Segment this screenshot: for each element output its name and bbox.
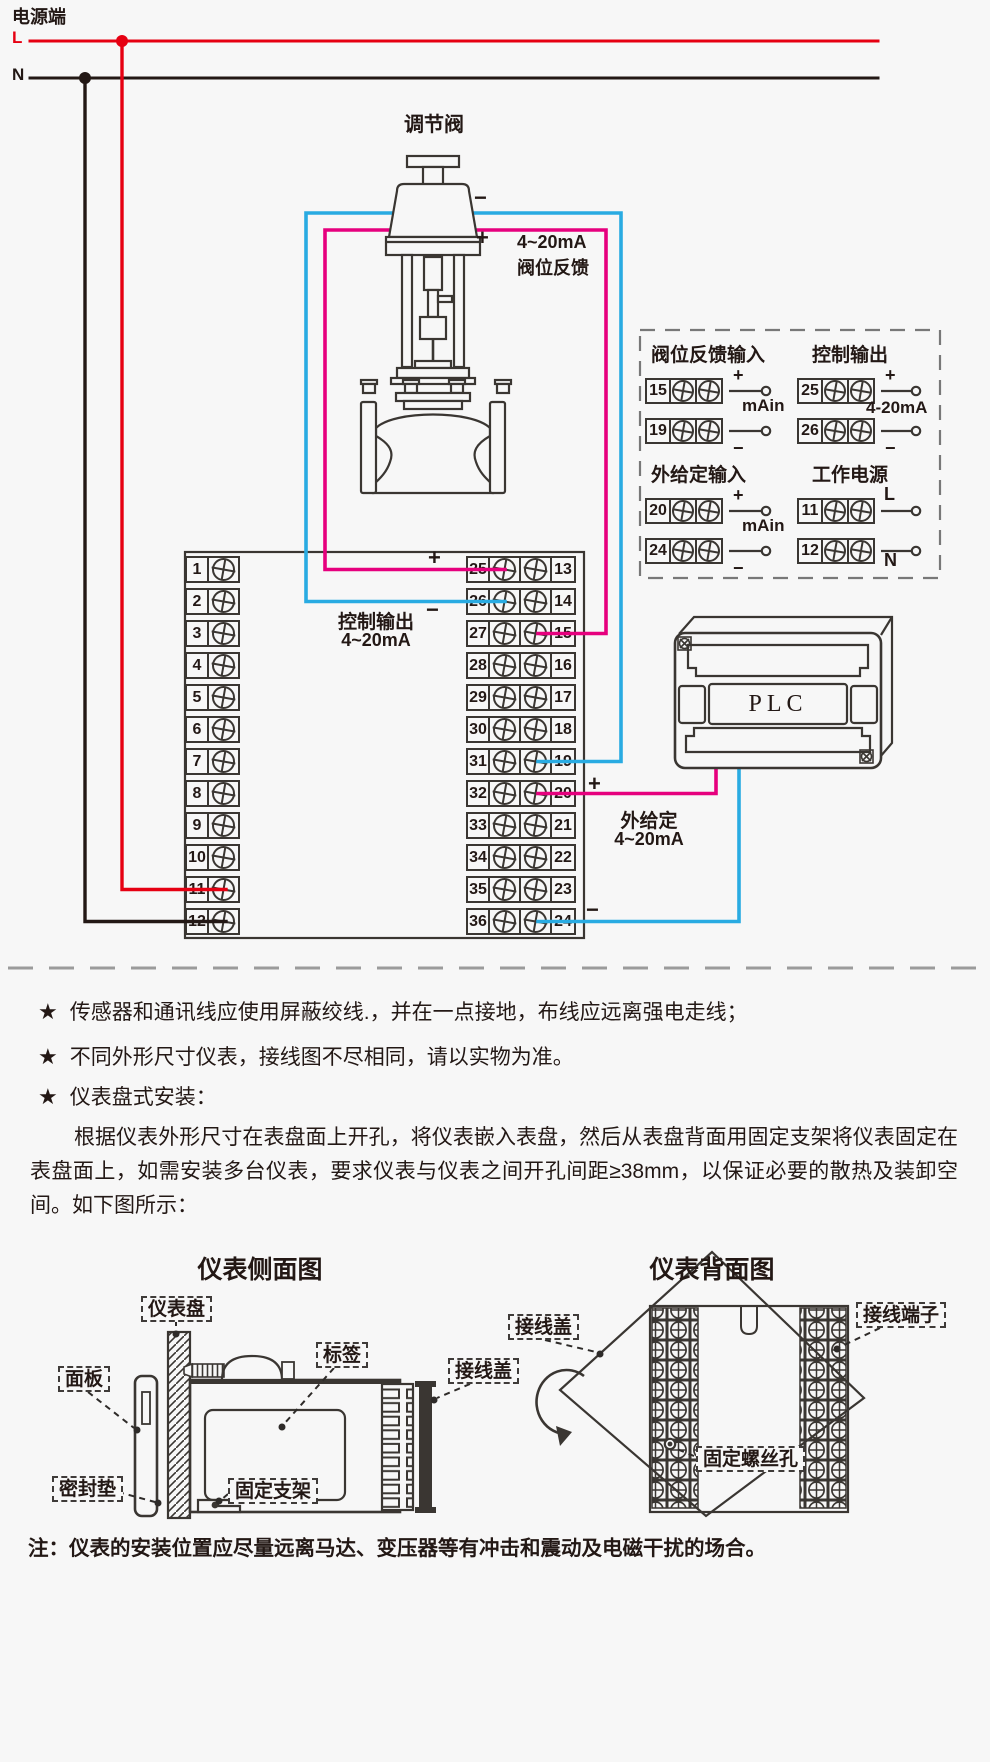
terminal-screw-icon <box>488 876 521 903</box>
terminal-row: 5 <box>185 684 240 711</box>
terminal-screw-icon <box>207 716 240 743</box>
terminal-screw-icon <box>207 588 240 615</box>
terminal-number: 7 <box>185 748 209 775</box>
terminal-screw-icon <box>519 780 552 807</box>
terminal-row: 2715 <box>466 620 576 647</box>
terminal-screw-icon <box>847 498 875 524</box>
terminal-row: 24 <box>645 538 723 564</box>
terminal-screw-icon <box>488 844 521 871</box>
terminal-row: 8 <box>185 780 240 807</box>
terminal-screw-icon <box>695 538 723 564</box>
terminal-screw-icon <box>519 556 552 583</box>
terminal-screw-icon <box>519 876 552 903</box>
terminal-screw-icon <box>488 556 521 583</box>
terminal-screw-icon <box>695 418 723 444</box>
terminal-screw-icon <box>488 716 521 743</box>
terminal-row: 3523 <box>466 876 576 903</box>
terminal-number: 6 <box>185 716 209 743</box>
terminal-screw-icon <box>519 652 552 679</box>
terminal-number: 3 <box>185 620 209 647</box>
terminal-row: 6 <box>185 716 240 743</box>
terminal-screw-icon <box>847 418 875 444</box>
terminal-screw-icon <box>695 498 723 524</box>
terminal-screw-icon <box>519 844 552 871</box>
terminal-number: 19 <box>645 418 671 444</box>
terminal-number: 1 <box>185 556 209 583</box>
terminal-number: 11 <box>797 498 823 524</box>
terminal-row: 10 <box>185 844 240 871</box>
terminal-number: 20 <box>550 780 576 807</box>
terminal-number: 9 <box>185 812 209 839</box>
terminal-number: 27 <box>466 620 490 647</box>
terminal-number: 25 <box>797 378 823 404</box>
terminal-row: 3018 <box>466 716 576 743</box>
terminal-screw-icon <box>669 418 697 444</box>
terminal-row: 3321 <box>466 812 576 839</box>
terminal-number: 15 <box>550 620 576 647</box>
terminal-number: 8 <box>185 780 209 807</box>
terminal-number: 21 <box>550 812 576 839</box>
terminal-row: 3422 <box>466 844 576 871</box>
terminal-screw-icon <box>669 498 697 524</box>
terminal-screw-icon <box>207 780 240 807</box>
terminal-number: 14 <box>550 588 576 615</box>
terminal-number: 18 <box>550 716 576 743</box>
terminal-screw-icon <box>821 378 849 404</box>
terminal-row: 26 <box>797 418 875 444</box>
terminal-row: 1 <box>185 556 240 583</box>
wiring-manual-page: { "power": { "title": "电源端", "live": "L"… <box>0 0 990 1757</box>
terminal-number: 35 <box>466 876 490 903</box>
terminal-number: 34 <box>466 844 490 871</box>
terminal-screw-icon <box>847 538 875 564</box>
terminal-screw-icon <box>207 620 240 647</box>
terminal-number: 20 <box>645 498 671 524</box>
terminal-number: 12 <box>797 538 823 564</box>
terminal-row: 3119 <box>466 748 576 775</box>
terminal-row: 20 <box>645 498 723 524</box>
terminal-screw-icon <box>488 780 521 807</box>
terminal-number: 10 <box>185 844 209 871</box>
terminal-screw-icon <box>519 620 552 647</box>
terminal-number: 19 <box>550 748 576 775</box>
terminal-row: 12 <box>797 538 875 564</box>
terminal-strips-layer: 1234567891011122513261427152816291730183… <box>0 0 990 1757</box>
terminal-row: 7 <box>185 748 240 775</box>
terminal-screw-icon <box>669 378 697 404</box>
terminal-row: 2513 <box>466 556 576 583</box>
terminal-screw-icon <box>519 588 552 615</box>
terminal-row: 4 <box>185 652 240 679</box>
terminal-row: 11 <box>185 876 240 903</box>
terminal-number: 11 <box>185 876 209 903</box>
terminal-screw-icon <box>207 652 240 679</box>
terminal-screw-icon <box>488 652 521 679</box>
terminal-row: 2614 <box>466 588 576 615</box>
terminal-row: 15 <box>645 378 723 404</box>
terminal-row: 25 <box>797 378 875 404</box>
terminal-row: 2917 <box>466 684 576 711</box>
terminal-screw-icon <box>519 716 552 743</box>
terminal-screw-icon <box>207 556 240 583</box>
terminal-number: 23 <box>550 876 576 903</box>
terminal-screw-icon <box>488 588 521 615</box>
terminal-screw-icon <box>669 538 697 564</box>
terminal-number: 36 <box>466 908 490 935</box>
terminal-screw-icon <box>207 748 240 775</box>
terminal-number: 33 <box>466 812 490 839</box>
terminal-number: 4 <box>185 652 209 679</box>
terminal-screw-icon <box>519 812 552 839</box>
terminal-screw-icon <box>821 498 849 524</box>
terminal-number: 24 <box>645 538 671 564</box>
terminal-row: 2 <box>185 588 240 615</box>
terminal-screw-icon <box>488 748 521 775</box>
terminal-number: 32 <box>466 780 490 807</box>
terminal-number: 16 <box>550 652 576 679</box>
terminal-number: 12 <box>185 908 209 935</box>
terminal-row: 3220 <box>466 780 576 807</box>
terminal-number: 26 <box>466 588 490 615</box>
terminal-screw-icon <box>519 748 552 775</box>
terminal-screw-icon <box>207 844 240 871</box>
terminal-number: 25 <box>466 556 490 583</box>
terminal-number: 13 <box>550 556 576 583</box>
terminal-number: 29 <box>466 684 490 711</box>
terminal-row: 2816 <box>466 652 576 679</box>
terminal-screw-icon <box>488 908 521 935</box>
terminal-number: 31 <box>466 748 490 775</box>
terminal-row: 11 <box>797 498 875 524</box>
terminal-screw-icon <box>519 684 552 711</box>
terminal-screw-icon <box>519 908 552 935</box>
terminal-number: 24 <box>550 908 576 935</box>
terminal-screw-icon <box>695 378 723 404</box>
terminal-number: 2 <box>185 588 209 615</box>
terminal-number: 17 <box>550 684 576 711</box>
terminal-row: 12 <box>185 908 240 935</box>
terminal-number: 15 <box>645 378 671 404</box>
terminal-number: 5 <box>185 684 209 711</box>
terminal-row: 19 <box>645 418 723 444</box>
terminal-screw-icon <box>207 812 240 839</box>
terminal-number: 26 <box>797 418 823 444</box>
terminal-screw-icon <box>821 418 849 444</box>
terminal-screw-icon <box>207 876 240 903</box>
terminal-row: 3624 <box>466 908 576 935</box>
terminal-number: 28 <box>466 652 490 679</box>
terminal-number: 22 <box>550 844 576 871</box>
terminal-screw-icon <box>207 908 240 935</box>
terminal-row: 9 <box>185 812 240 839</box>
terminal-screw-icon <box>821 538 849 564</box>
terminal-screw-icon <box>207 684 240 711</box>
terminal-row: 3 <box>185 620 240 647</box>
terminal-number: 30 <box>466 716 490 743</box>
terminal-screw-icon <box>488 620 521 647</box>
terminal-screw-icon <box>488 812 521 839</box>
terminal-screw-icon <box>847 378 875 404</box>
terminal-screw-icon <box>488 684 521 711</box>
